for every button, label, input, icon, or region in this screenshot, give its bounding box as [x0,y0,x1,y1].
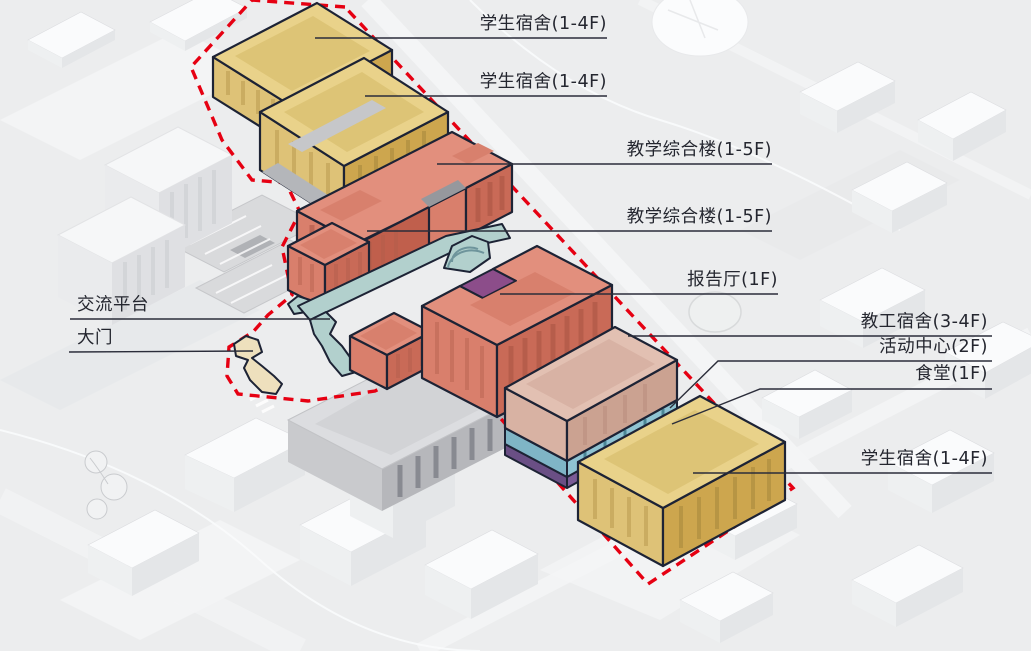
label-canteen: 食堂(1F) [788,363,988,385]
label-main-gate: 大门 [77,327,113,349]
label-exchange-platform: 交流平台 [77,294,149,316]
label-student-dorm-3: 学生宿舍(1-4F) [788,448,988,470]
label-student-dorm-2: 学生宿舍(1-4F) [407,71,607,93]
label-staff-dorm: 教工宿舍(3-4F) [788,311,988,333]
label-activity-center: 活动中心(2F) [788,336,988,358]
label-teaching-complex-2: 教学综合楼(1-5F) [572,206,772,228]
label-teaching-complex-1: 教学综合楼(1-5F) [572,139,772,161]
fountain-plaza [689,292,741,332]
label-student-dorm-1: 学生宿舍(1-4F) [407,13,607,35]
label-lecture-hall: 报告厅(1F) [578,269,778,291]
campus-masterplan-diagram: 学生宿舍(1-4F) 学生宿舍(1-4F) 教学综合楼(1-5F) 教学综合楼(… [0,0,1031,651]
